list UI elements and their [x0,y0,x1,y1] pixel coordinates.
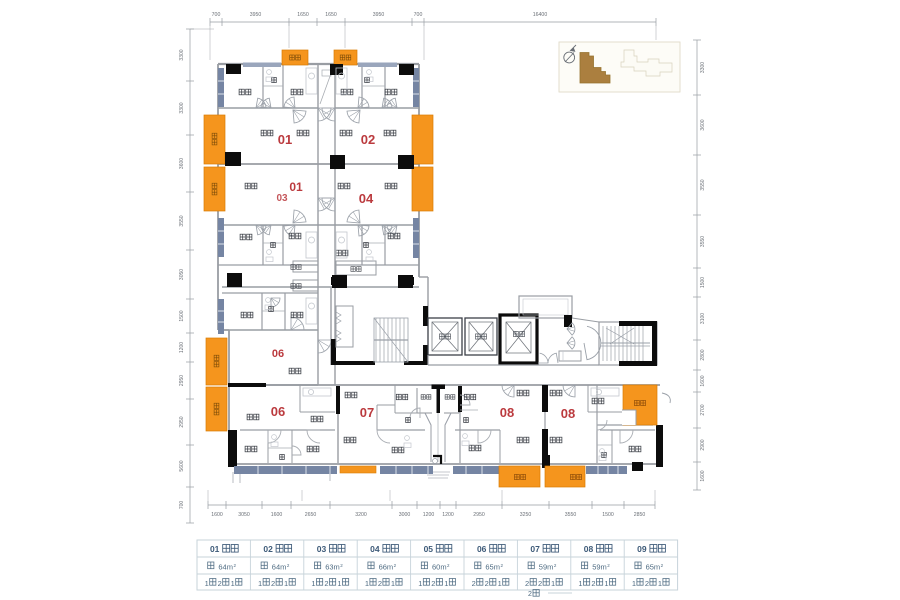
svg-text:09: 09 [637,544,647,554]
svg-text:1: 1 [258,579,262,588]
svg-text:1: 1 [604,579,608,588]
svg-text:06: 06 [477,544,487,554]
svg-text:3050: 3050 [179,269,185,280]
svg-text:1650: 1650 [325,12,337,18]
svg-text:60m: 60m [432,563,447,572]
svg-text:65m: 65m [485,563,500,572]
svg-text:3950: 3950 [250,12,262,18]
svg-text:2: 2 [324,579,328,588]
svg-text:2: 2 [485,579,489,588]
svg-text:2: 2 [528,591,532,598]
svg-text:1: 1 [365,579,369,588]
svg-text:700: 700 [179,501,185,510]
svg-text:2650: 2650 [305,512,317,518]
svg-text:2: 2 [645,579,649,588]
svg-text:66m: 66m [379,563,394,572]
svg-text:64m: 64m [218,563,233,572]
svg-text:1600: 1600 [700,375,706,386]
svg-text:3550: 3550 [565,512,577,518]
svg-text:08: 08 [561,406,575,421]
svg-text:04: 04 [370,544,380,554]
svg-text:01: 01 [278,132,292,147]
svg-text:1: 1 [444,579,448,588]
svg-text:3200: 3200 [355,512,367,518]
svg-text:3550: 3550 [700,236,706,247]
svg-text:3950: 3950 [373,12,385,18]
svg-text:2: 2 [218,579,222,588]
svg-text:02: 02 [361,132,375,147]
svg-text:63m: 63m [325,563,340,572]
svg-text:05: 05 [424,544,434,554]
svg-text:1650: 1650 [297,12,309,18]
svg-text:2: 2 [525,579,529,588]
svg-text:06: 06 [272,348,284,360]
svg-text:1500: 1500 [700,277,706,288]
svg-text:1: 1 [337,579,341,588]
svg-text:1: 1 [205,579,209,588]
svg-text:59m: 59m [592,563,607,572]
svg-text:08: 08 [584,544,594,554]
svg-text:1: 1 [498,579,502,588]
svg-text:1: 1 [658,579,662,588]
svg-text:3000: 3000 [399,512,411,518]
svg-text:1500: 1500 [602,512,614,518]
svg-text:3550: 3550 [700,179,706,190]
svg-text:1: 1 [551,579,555,588]
svg-text:1600: 1600 [271,512,283,518]
svg-text:1: 1 [578,579,582,588]
svg-text:04: 04 [359,191,374,206]
svg-text:07: 07 [360,405,374,420]
svg-text:1600: 1600 [211,512,223,518]
svg-text:2: 2 [472,579,476,588]
svg-text:2850: 2850 [634,512,646,518]
svg-text:2700: 2700 [700,404,706,415]
svg-text:3600: 3600 [179,158,185,169]
svg-text:1: 1 [391,579,395,588]
svg-text:2800: 2800 [700,349,706,360]
svg-text:1: 1 [632,579,636,588]
svg-text:3050: 3050 [238,512,250,518]
svg-text:2950: 2950 [473,512,485,518]
svg-text:3600: 3600 [700,119,706,130]
svg-text:700: 700 [212,12,221,18]
svg-text:1: 1 [311,579,315,588]
svg-text:2: 2 [591,579,595,588]
svg-text:3550: 3550 [179,215,185,226]
svg-text:03: 03 [276,193,288,204]
svg-text:64m: 64m [272,563,287,572]
svg-text:3300: 3300 [179,102,185,113]
svg-text:1200: 1200 [423,512,435,518]
svg-text:1: 1 [418,579,422,588]
svg-text:02: 02 [263,544,273,554]
svg-text:3300: 3300 [179,49,185,60]
svg-text:07: 07 [530,544,540,554]
svg-text:3300: 3300 [700,62,706,73]
svg-text:1200: 1200 [179,342,185,353]
svg-text:2: 2 [538,579,542,588]
svg-text:1600: 1600 [700,470,706,481]
svg-text:1: 1 [284,579,288,588]
svg-text:16400: 16400 [533,12,548,18]
svg-text:2950: 2950 [179,375,185,386]
svg-text:3100: 3100 [700,313,706,324]
svg-text:700: 700 [414,12,423,18]
svg-text:5600: 5600 [179,460,185,471]
svg-text:2900: 2900 [700,439,706,450]
svg-text:01: 01 [210,544,220,554]
svg-text:3250: 3250 [520,512,532,518]
svg-text:65m: 65m [646,563,661,572]
svg-text:2: 2 [378,579,382,588]
svg-text:2: 2 [271,579,275,588]
svg-text:1500: 1500 [179,310,185,321]
svg-text:08: 08 [500,405,514,420]
svg-text:59m: 59m [539,563,554,572]
svg-text:06: 06 [271,404,285,419]
svg-text:03: 03 [317,544,327,554]
svg-text:2950: 2950 [179,416,185,427]
svg-text:1: 1 [231,579,235,588]
svg-text:01: 01 [289,180,303,194]
svg-text:1200: 1200 [442,512,454,518]
svg-text:2: 2 [431,579,435,588]
